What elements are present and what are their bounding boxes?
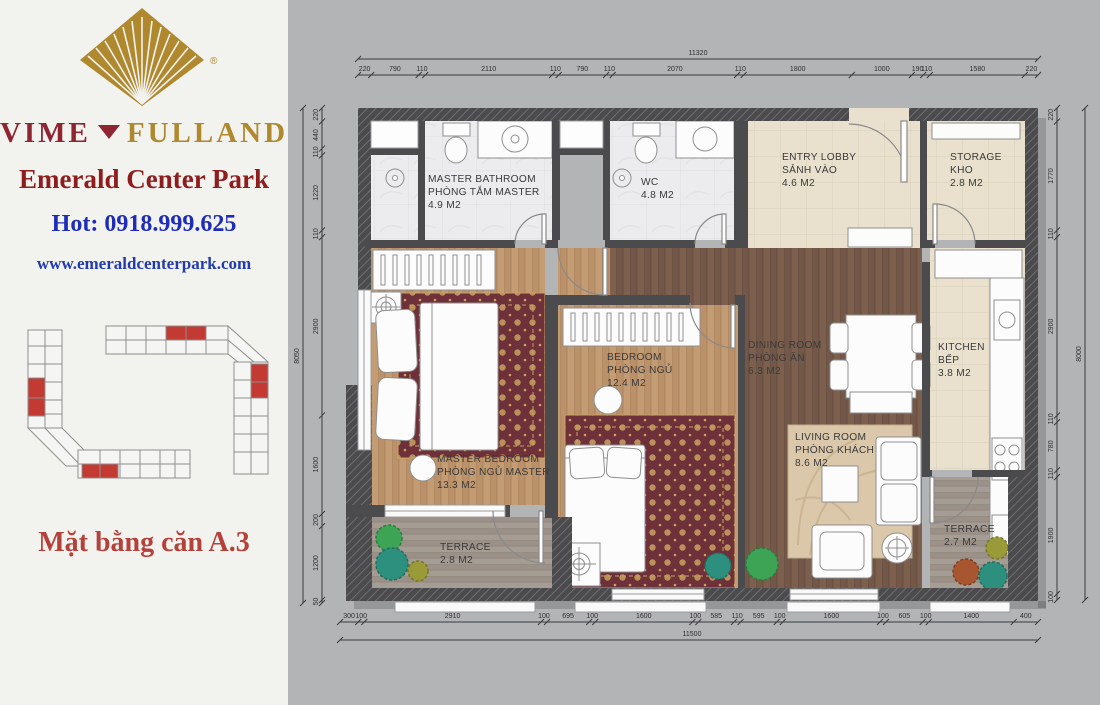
dimension-value: 780 xyxy=(1048,440,1055,452)
exterior-sill xyxy=(787,602,880,612)
exterior-sill xyxy=(575,602,706,612)
vimefulland-logo: ® xyxy=(64,6,224,115)
website-url: www.emeraldcenterpark.com xyxy=(37,254,251,274)
dimension-value: 220 xyxy=(359,66,371,73)
dimension-value: 2070 xyxy=(667,66,683,73)
dimension-value: 110 xyxy=(416,66,427,73)
dimension-value: 1600 xyxy=(824,613,840,620)
sofa-icon xyxy=(876,437,921,525)
dimension-value: 2110 xyxy=(481,66,496,73)
storage-shelf xyxy=(932,123,1020,139)
dimension-value: 50 xyxy=(313,597,320,605)
dimension-value: 11320 xyxy=(689,50,708,57)
dimension-value: 605 xyxy=(898,613,910,620)
page: ® VIME FULLAND Emerald Center Park Hot: … xyxy=(0,0,1100,705)
plant-icon xyxy=(705,553,731,579)
stool-bedroom xyxy=(594,386,622,414)
dimension-value: 100 xyxy=(538,613,550,620)
dimension-value: 8000 xyxy=(1076,346,1083,362)
plant-icon xyxy=(746,548,778,580)
armchair-icon xyxy=(812,525,872,578)
dimension-value: 220 xyxy=(313,109,320,121)
exterior-sill xyxy=(930,602,1010,612)
project-name: Emerald Center Park xyxy=(19,164,269,195)
wardrobe-master-icon xyxy=(373,250,495,290)
dimension-value: 585 xyxy=(710,613,722,620)
coffee-table xyxy=(822,466,858,502)
window-living xyxy=(790,589,878,600)
logo-diamond-icon: ® xyxy=(64,6,224,110)
dimension-value: 11500 xyxy=(683,631,702,638)
entry-opening xyxy=(849,108,909,121)
logo-reg-mark: ® xyxy=(210,56,218,67)
dimension-value: 1580 xyxy=(970,66,986,73)
dimension-value: 100 xyxy=(690,613,702,620)
dimension-value: 110 xyxy=(1048,228,1055,239)
tv-console xyxy=(850,392,912,413)
floor-plan: MASTER BATHROOMPHÒNG TẮM MASTER4.9 M2WC4… xyxy=(288,0,1100,705)
dimension-value: 300 xyxy=(343,613,355,620)
dimension-value: 1800 xyxy=(790,66,806,73)
dimension-value: 100 xyxy=(1048,591,1055,603)
dimension-value: 2910 xyxy=(445,613,461,620)
dimension-value: 2900 xyxy=(1048,318,1055,334)
dimension-value: 100 xyxy=(355,613,367,620)
dimension-value: 100 xyxy=(774,613,786,620)
dimension-value: 110 xyxy=(604,66,615,73)
dimension-value: 200 xyxy=(313,514,320,526)
dimension-value: 220 xyxy=(1026,66,1038,73)
dimension-value: 100 xyxy=(586,613,598,620)
brand-wordmark: VIME FULLAND xyxy=(0,117,288,150)
dimension-value: 440 xyxy=(313,129,320,141)
window-bedroom xyxy=(612,589,704,600)
dimension-value: 1200 xyxy=(313,555,320,571)
window-left-wall xyxy=(358,290,371,450)
dimension-value: 790 xyxy=(577,66,589,73)
sidebar: ® VIME FULLAND Emerald Center Park Hot: … xyxy=(0,0,288,705)
brand-chevron-icon xyxy=(98,125,120,139)
dimension-value: 2900 xyxy=(313,318,320,334)
dimension-value: 110 xyxy=(1048,468,1055,479)
dimension-value: 1600 xyxy=(636,613,652,620)
exterior-sill xyxy=(395,602,535,612)
dimension-value: 110 xyxy=(921,66,932,73)
dimension-value: 100 xyxy=(920,613,932,620)
dimension-value: 695 xyxy=(562,613,574,620)
dimension-value: 1400 xyxy=(963,613,979,620)
dimension-value: 110 xyxy=(732,613,743,620)
kitchen-sink-icon xyxy=(994,300,1020,340)
dimension-value: 1900 xyxy=(1048,528,1055,544)
dimension-value: 110 xyxy=(313,228,320,239)
site-key-plan xyxy=(18,316,270,499)
side-table-living xyxy=(882,533,912,563)
dimension-value: 790 xyxy=(389,66,401,73)
hallway-floor xyxy=(558,248,610,295)
stool-master-bedroom xyxy=(410,455,436,481)
dimension-value: 110 xyxy=(550,66,561,73)
dimension-value: 1770 xyxy=(1048,168,1055,184)
dimension-value: 110 xyxy=(735,66,746,73)
dimension-value: 8050 xyxy=(294,348,301,364)
wardrobe-bedroom-icon xyxy=(563,308,700,346)
dimension-value: 110 xyxy=(313,146,320,157)
dimension-value: 220 xyxy=(1048,109,1055,121)
dimension-value: 1220 xyxy=(313,185,320,201)
dimension-value: 1600 xyxy=(313,457,320,473)
dimension-value: 595 xyxy=(753,613,765,620)
dimension-value: 400 xyxy=(1020,613,1032,620)
kitchen-top-counter xyxy=(935,250,1022,278)
entry-mat xyxy=(848,228,912,247)
dimension-value: 110 xyxy=(1048,413,1055,424)
unit-caption: Mặt bằng căn A.3 xyxy=(38,527,250,559)
hotline: Hot: 0918.999.625 xyxy=(52,211,237,238)
brand-vime: VIME xyxy=(0,117,91,150)
dimension-value: 1000 xyxy=(874,66,890,73)
dimension-value: 100 xyxy=(877,613,889,620)
brand-fulland: FULLAND xyxy=(127,117,288,150)
